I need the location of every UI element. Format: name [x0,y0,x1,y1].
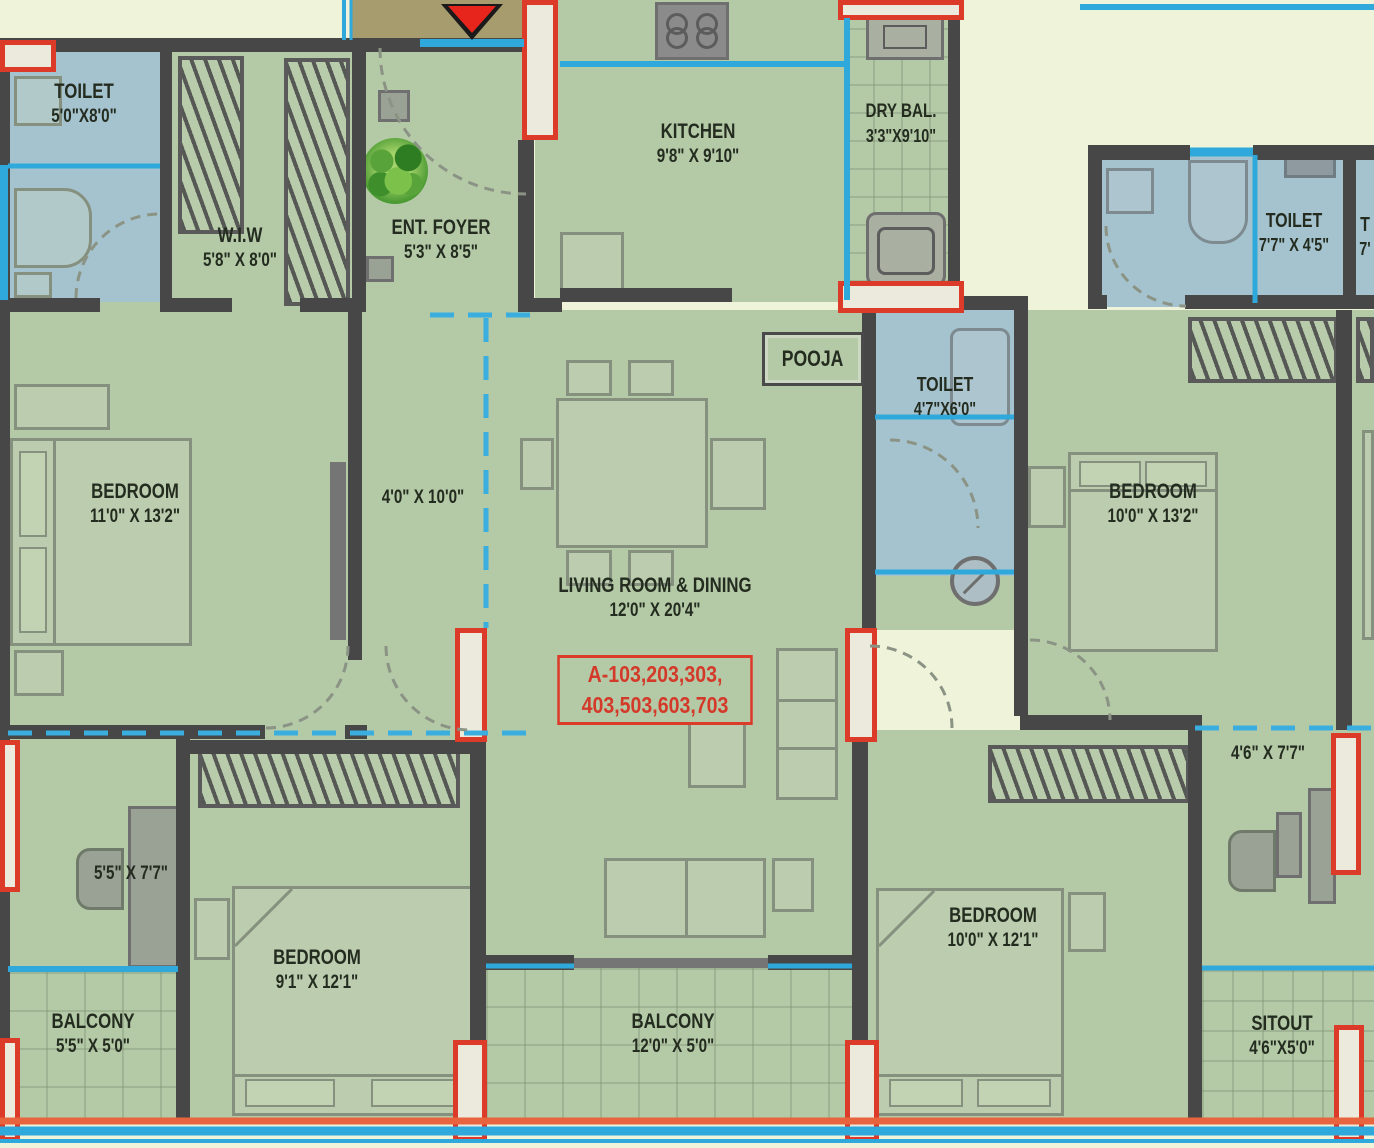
wardrobe-icon [198,750,460,808]
cpu-icon [1276,812,1302,878]
column-marker [838,0,964,20]
sliding-door [330,462,346,640]
wall [352,38,366,312]
wall [1356,295,1374,309]
balcony-sliding-door [574,958,768,968]
wall [348,310,362,660]
utility-sink-icon [866,14,944,60]
dining-table [556,398,708,548]
wall [8,38,530,52]
wc-icon [1188,160,1248,244]
balcony-center-label: BALCONY12'0" X 5'0" [597,1008,749,1060]
wall [518,140,534,312]
entrance-arrow-icon [441,4,503,40]
sofa-icon [604,858,766,938]
unit-numbers-box: A-103,203,303, 403,503,603,703 [557,655,753,725]
tv-shelf-unit [776,648,838,800]
stove-icon [655,2,729,60]
wall [1088,145,1190,160]
toilet-partial-label: T7' [1356,212,1374,261]
column-marker [1331,733,1361,875]
column-marker [0,1038,20,1142]
column-marker [0,40,56,72]
wall [8,298,100,312]
desk-icon [128,806,182,968]
column-marker [453,1040,487,1142]
wardrobe-icon [1188,317,1338,383]
wall [160,50,172,302]
bedroom-right-label: BEDROOM10'0" X 13'2" [1077,478,1229,530]
bedroom-br-label: BEDROOM10'0" X 12'1" [917,902,1069,954]
plant-icon [362,138,428,204]
wiw-label: W.I.W5'8" X 8'0" [176,222,304,274]
wall [1014,296,1028,716]
bedroom-left-label: BEDROOM11'0" X 13'2" [59,478,211,530]
geyser-icon [950,556,1000,606]
wardrobe-icon [988,745,1190,803]
wall [560,288,732,302]
chair-icon [566,360,612,396]
column-marker [522,0,558,140]
sink-icon [1106,168,1154,214]
side-table [772,858,814,912]
wall [948,16,960,302]
dresser-icon [14,384,110,430]
column-marker [1334,1025,1364,1142]
nightstand-icon [1068,892,1106,952]
chair-icon [710,438,766,510]
toilet-mid-label: TOILET4'7"X6'0" [893,372,997,421]
bed-edge-partial [1362,430,1374,640]
wall [1088,153,1102,309]
coffee-table [688,722,746,788]
unit-numbers-line2: 403,503,603,703 [582,692,729,718]
wall [862,310,876,630]
drain-icon [14,272,52,298]
sitout-label: SITOUT4'6"X5'0" [1226,1010,1338,1062]
toilet-topleft-label: TOILET5'0"X8'0" [28,78,140,130]
pooja-room: POOJA [762,332,864,386]
living-label: LIVING ROOM & DINING12'0" X 20'4" [543,572,767,624]
electric-box-icon [378,90,410,122]
wall [1185,295,1343,309]
floor-plan: POOJA A-103,203,303, 403,503,603,703 TOI… [0,0,1374,1148]
column-marker [845,628,877,742]
washing-machine-icon [866,212,946,286]
wall [176,735,190,1118]
nightstand-icon [1028,466,1066,528]
wc-icon [14,188,92,268]
dress-left-label: 5'5" X 7'7" [79,862,183,887]
column-marker [845,1040,879,1142]
column-marker [0,740,20,892]
balcony-left-label: BALCONY5'5" X 5'0" [33,1008,153,1060]
kitchen-label: KITCHEN9'8" X 9'10" [618,118,778,170]
wardrobe-icon [178,56,244,234]
chair-icon [628,360,674,396]
toilet-right-label: TOILET7'7" X 4'5" [1249,208,1339,257]
column-marker [455,628,487,742]
wall [190,740,482,754]
wall [480,955,574,970]
desk-chair-icon [1228,830,1276,892]
column-marker [838,281,964,313]
nightstand-icon [194,898,230,960]
wall [8,725,265,739]
unit-numbers-line1: A-103,203,303, [588,661,723,687]
chair-icon [520,438,554,490]
ent-foyer-label: ENT. FOYER5'3" X 8'5" [373,214,509,266]
wall [1343,150,1356,309]
pooja-label: POOJA [782,345,844,374]
wall [1336,310,1352,730]
wall [345,725,367,739]
bed-icon [232,886,474,1116]
wall [1188,715,1202,1118]
wardrobe-icon [1356,317,1374,383]
wall [0,38,10,1118]
drybalcony-label: DRY BAL.3'3"X9'10" [857,100,945,148]
nightstand-icon [14,650,64,696]
bed-icon [10,438,192,646]
bedroom-bl-label: BEDROOM9'1" X 12'1" [241,944,393,996]
passage-label: 4'0" X 10'0" [377,486,468,511]
wall [1020,715,1202,730]
study-right-label: 4'6" X 7'7" [1220,742,1316,767]
